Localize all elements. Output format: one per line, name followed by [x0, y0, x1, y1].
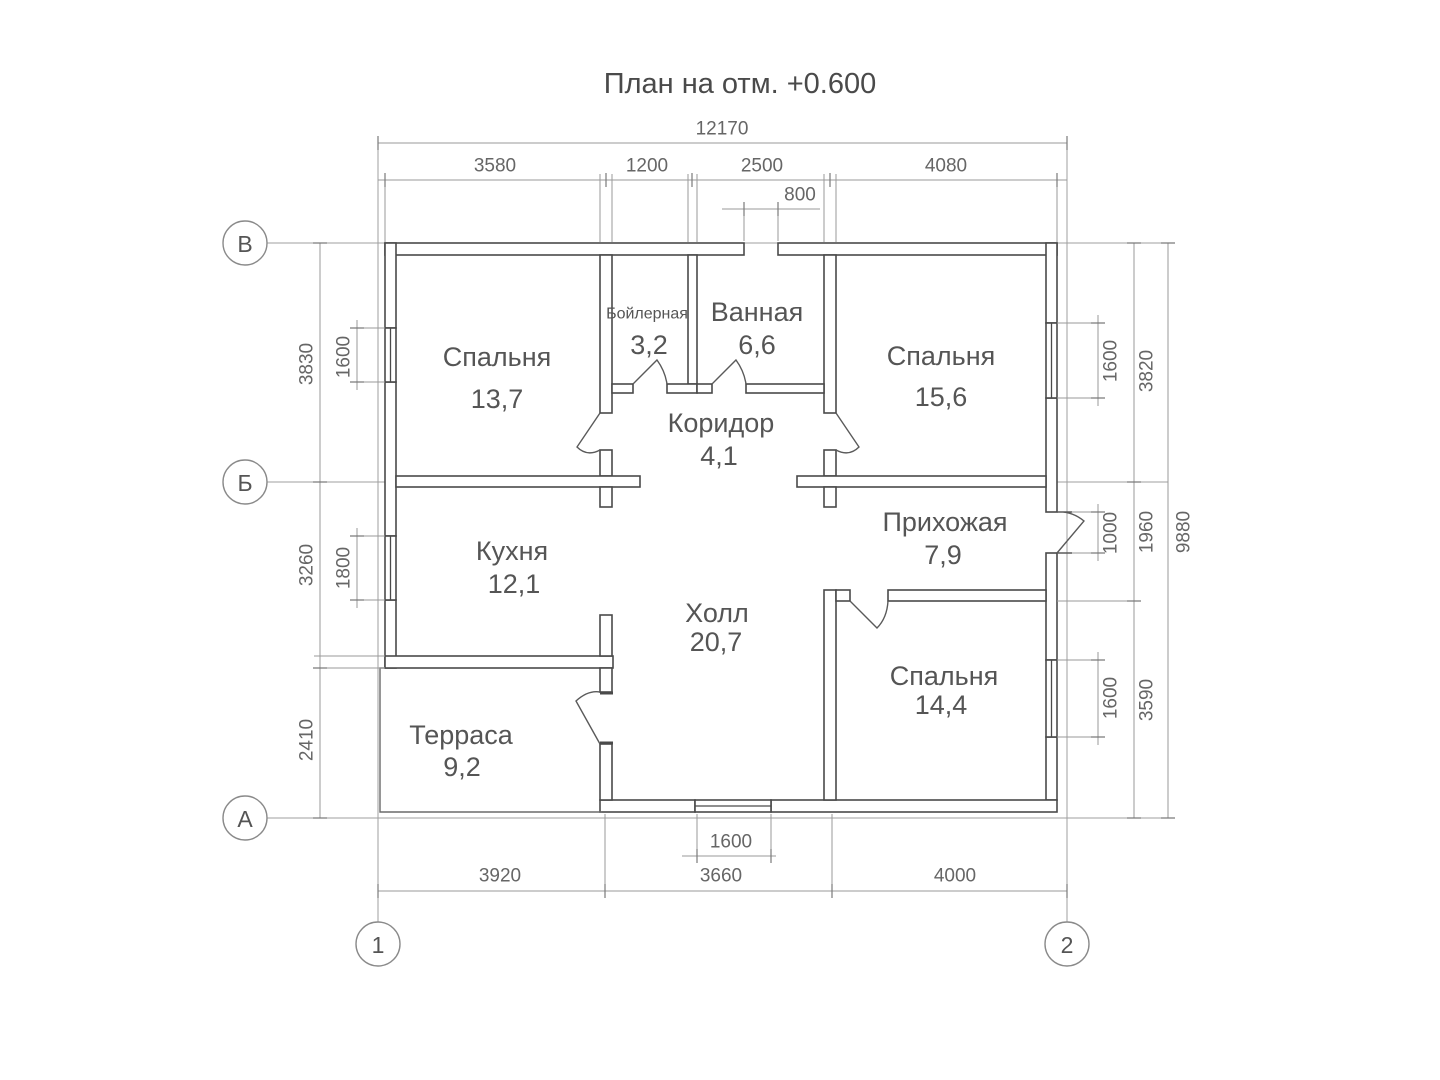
axis-label-col2: 2: [1061, 932, 1074, 958]
dim-top-vent: 800: [784, 185, 816, 206]
floor-plan-drawing: План на отм. +0.600: [0, 0, 1440, 1080]
door-terrace: [576, 692, 600, 744]
door-boiler: [633, 360, 667, 384]
room-area-boiler: 3,2: [630, 330, 668, 360]
axis-label-row1: В: [237, 231, 252, 257]
dim-left-3: 2410: [297, 719, 318, 761]
room-area-kitchen: 12,1: [488, 569, 541, 599]
dim-right-1: 3820: [1137, 350, 1158, 392]
dim-right-window-2: 1600: [1101, 677, 1122, 719]
dim-right-door: 1000: [1101, 512, 1122, 554]
axis-label-row2: Б: [237, 470, 252, 496]
floor-plan-page: План на отм. +0.600: [0, 0, 1440, 1080]
room-name-terrace: Терраса: [409, 720, 514, 750]
dim-top-4: 4080: [925, 156, 967, 177]
room-name-boiler: Бойлерная: [606, 306, 688, 323]
page-title: План на отм. +0.600: [604, 68, 877, 100]
room-name-entry: Прихожая: [882, 507, 1007, 537]
room-name-bath: Ванная: [711, 297, 803, 327]
dim-left-1: 3830: [297, 343, 318, 385]
dim-bottom-window: 1600: [710, 832, 752, 853]
dim-right-3: 3590: [1137, 679, 1158, 721]
room-labels: Спальня 13,7 Бойлерная 3,2 Ванная 6,6 Сп…: [409, 297, 1007, 782]
door-bedroom2: [836, 413, 859, 453]
door-bedroom3: [850, 601, 888, 628]
dim-left-window-1: 1600: [334, 336, 355, 378]
dimension-labels: 12170 3580 1200 2500 4080 800 3920 3660 …: [297, 119, 1195, 887]
dim-left-2: 3260: [297, 544, 318, 586]
dim-top-overall: 12170: [696, 119, 749, 140]
door-bath: [712, 360, 746, 384]
room-area-corridor: 4,1: [700, 441, 738, 471]
dim-right-window-1: 1600: [1101, 340, 1122, 382]
dim-top-2: 1200: [626, 156, 668, 177]
room-area-bedroom1: 13,7: [471, 384, 524, 414]
room-area-bedroom3: 14,4: [915, 690, 968, 720]
room-name-corridor: Коридор: [668, 408, 775, 438]
dim-top-1: 3580: [474, 156, 516, 177]
room-name-kitchen: Кухня: [476, 536, 548, 566]
room-area-entry: 7,9: [924, 540, 962, 570]
dim-top-3: 2500: [741, 156, 783, 177]
dim-left-window-2: 1800: [334, 547, 355, 589]
dim-right-2: 1960: [1137, 511, 1158, 553]
room-name-hall: Холл: [685, 598, 749, 628]
room-name-bedroom1: Спальня: [443, 342, 552, 372]
room-area-bath: 6,6: [738, 330, 776, 360]
axis-label-col1: 1: [372, 932, 385, 958]
door-bedroom1: [577, 413, 600, 453]
terrace-door-jambs: [600, 693, 613, 743]
dim-bottom-2: 3660: [700, 866, 742, 887]
room-name-bedroom2: Спальня: [887, 341, 996, 371]
room-area-bedroom2: 15,6: [915, 382, 968, 412]
axis-label-row3: А: [237, 806, 253, 832]
dim-right-overall: 9880: [1174, 511, 1195, 553]
room-name-bedroom3: Спальня: [890, 661, 999, 691]
room-area-hall: 20,7: [690, 627, 743, 657]
door-entrance: [1057, 512, 1084, 553]
dim-bottom-1: 3920: [479, 866, 521, 887]
room-area-terrace: 9,2: [443, 752, 481, 782]
dim-bottom-3: 4000: [934, 866, 976, 887]
